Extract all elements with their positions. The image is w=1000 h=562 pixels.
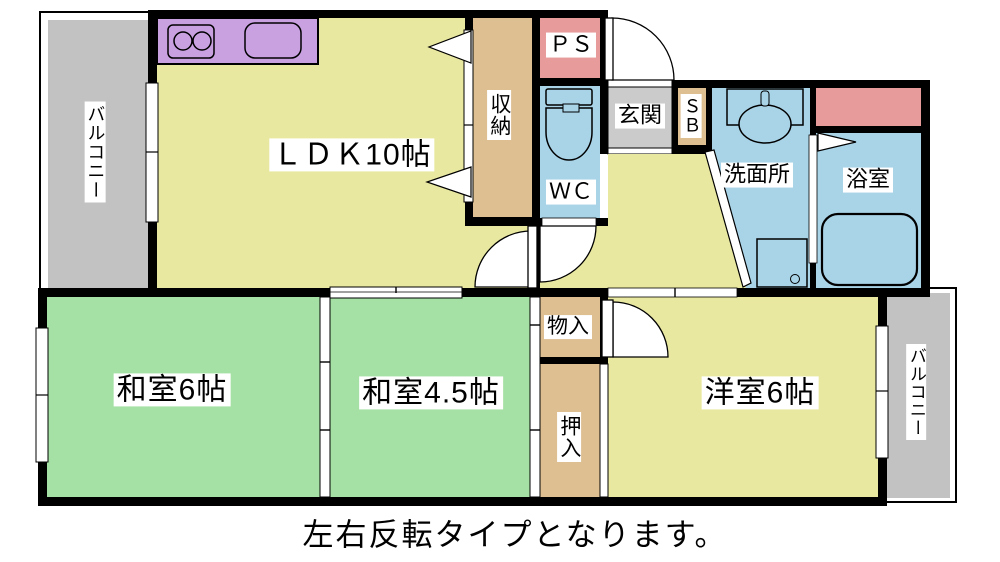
fusuma-closet-left — [530, 297, 540, 497]
bathtub-icon — [822, 214, 917, 285]
ldk-label: ＬＤＫ10帖 — [269, 138, 434, 171]
window-ldk-balcony — [146, 83, 158, 222]
threshold-western6 — [608, 288, 737, 297]
wc-label: ＷＣ — [546, 180, 596, 205]
toilet-icon — [546, 89, 592, 160]
fusuma-oshiire-right — [600, 364, 608, 497]
plan-caption: 左右反転タイプとなります。 — [303, 510, 728, 555]
opening-bathroom — [809, 135, 817, 263]
entrance-label: 玄関 — [615, 104, 665, 129]
japanese-room45-label: 和室4.5帖 — [359, 376, 503, 409]
storage-label: 収納 — [487, 90, 511, 140]
bathroom-pipe-strip — [816, 88, 921, 126]
monoire-label: 物入 — [544, 315, 592, 339]
sliding-partition-japanese-rooms — [320, 297, 330, 497]
washroom-label: 洗面所 — [721, 163, 793, 188]
bathroom-label: 浴室 — [843, 168, 893, 193]
oshiire-label: 押入 — [557, 412, 581, 462]
stove-icon — [168, 25, 214, 58]
western-room6-label: 洋室6帖 — [702, 376, 819, 409]
entrance-step — [608, 148, 672, 154]
sliding-door-ldk-japanese45 — [330, 287, 462, 298]
balcony-left-label: バルコニー — [85, 102, 106, 203]
window-western6 — [876, 326, 888, 458]
balcony-right-label: バルコニー — [906, 344, 926, 440]
shoebox-label: ＳＢ — [681, 94, 702, 138]
window-japanese6 — [36, 328, 48, 462]
pipe-space-label: ＰＳ — [546, 33, 596, 58]
opening-wc — [542, 218, 596, 226]
japanese-room6-label: 和室6帖 — [114, 373, 231, 406]
floorplan-page: バルコニー ＬＤＫ10帖 収納 ＰＳ ＷＣ 玄関 ＳＢ 洗面所 浴室 和室6帖 … — [0, 0, 1000, 562]
kitchen-counter — [157, 18, 318, 64]
entrance-door-swing — [605, 18, 674, 80]
kitchen-sink-icon — [245, 23, 301, 58]
floorplan-drawing — [0, 0, 1000, 562]
washing-machine-icon — [757, 239, 807, 287]
